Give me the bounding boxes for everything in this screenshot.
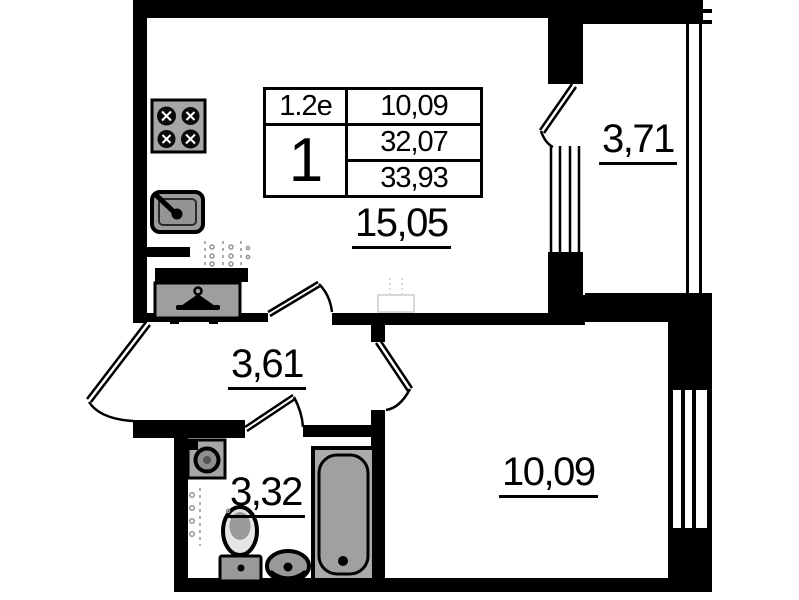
door-swing-arc [319,284,332,312]
label-bathroom-area: 3,32 [227,472,305,518]
label-bedroom-area: 10,09 [499,452,598,498]
door-leaf [376,343,408,391]
window-line [681,390,685,528]
unit-type-cell: 1.2е [266,90,345,123]
wall-segment [548,252,583,295]
bedroom-window [668,390,712,528]
kitchen-sink-icon [152,192,203,232]
washing-machine-icon [188,440,225,478]
wall-segment [668,528,712,580]
window-line [707,390,712,528]
balcony-door [540,84,576,147]
balcony-glazing [686,24,702,293]
spec-table: 1.2е 1 10,09 32,07 33,93 [263,87,483,198]
window-line [692,390,696,528]
window-line [668,390,673,528]
wardrobe-foot [209,318,218,324]
rooms-count-cell: 1 [266,126,345,195]
door-swing-arc [541,131,553,147]
wall-tick [703,9,712,13]
area-cell-1: 10,09 [348,90,480,123]
toilet-icon [220,507,261,581]
door-leaf [544,87,576,133]
duct-outline [378,278,414,312]
wall-tick [703,20,712,24]
washbasin-icon [267,551,309,581]
stove-icon [152,100,205,152]
door-leaf [245,395,293,427]
door-leaf [268,282,318,312]
wardrobe-foot [170,318,179,324]
wall-segment [133,0,147,323]
door-swing-arc [294,397,303,427]
wall-segment [371,325,385,342]
wall-segment [548,15,583,84]
glazing-line [686,24,689,293]
door-swing-arc [386,389,410,410]
living-room-door [268,282,332,316]
wall-segment [303,425,371,437]
door-leaf [380,340,412,388]
wall-segment [133,0,550,18]
floor-plan: 1.2е 1 10,09 32,07 33,93 15,05 3,71 3,61… [0,0,799,600]
wall-segment [332,313,585,325]
wall-segment [133,420,245,438]
label-balcony-area: 3,71 [599,119,677,165]
bathroom-door [245,395,303,431]
area-cell-2: 32,07 [348,126,480,159]
bathtub-icon [313,448,374,580]
door-leaf [87,322,146,399]
door-leaf [91,325,150,402]
entrance-door [87,322,150,421]
wall-segment [668,322,712,390]
bedroom-door [376,340,412,410]
wall-segment [548,295,585,322]
door-leaf [540,84,572,130]
wall-segment [155,268,248,282]
balcony-door-window [551,146,579,252]
label-kitchen-living-area: 15,05 [352,203,451,249]
door-leaf [247,399,295,431]
wall-segment [585,293,712,322]
door-leaf [270,286,320,316]
area-cell-3: 33,93 [348,162,480,195]
label-hallway-area: 3,61 [228,344,306,390]
wall-segment [174,438,188,578]
wall-segment [147,247,190,257]
wardrobe [155,283,240,324]
kitchen-vent-marks [205,241,250,268]
glazing-line [699,24,702,293]
door-swing-arc [89,402,133,421]
